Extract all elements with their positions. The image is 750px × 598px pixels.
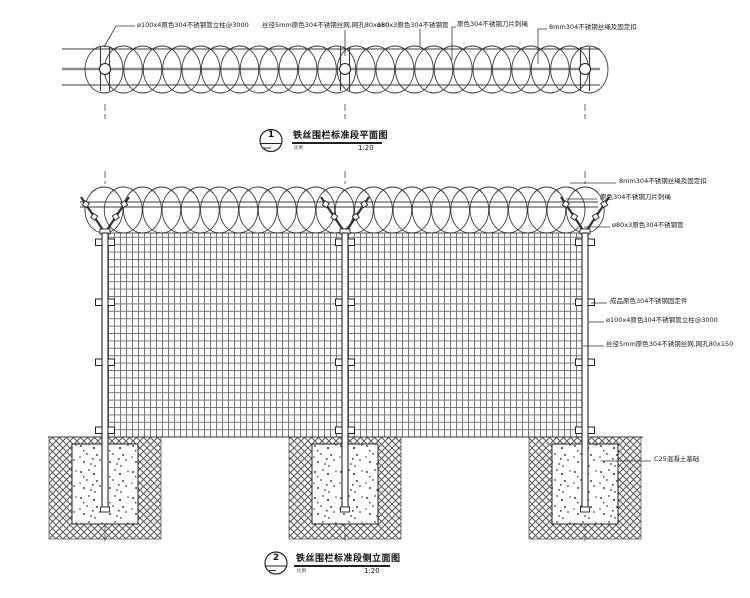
mesh-fixing-clip bbox=[576, 239, 583, 246]
mesh-fixing-clip bbox=[108, 359, 115, 366]
post-base bbox=[341, 507, 350, 512]
mesh-fixing-clip bbox=[336, 239, 343, 246]
plan-label-post: ø100x4原色304不锈钢管立柱@3000 bbox=[137, 22, 249, 29]
mesh-fixing-clip bbox=[576, 359, 583, 366]
plan-post-section bbox=[580, 64, 591, 75]
plan-scale-label: 比例 bbox=[294, 145, 303, 151]
fence-post bbox=[102, 233, 108, 509]
mesh-fixing-clip bbox=[336, 427, 343, 434]
mesh-fixing-clip bbox=[588, 359, 595, 366]
mesh-fixing-clip bbox=[588, 427, 595, 434]
elev-label-razor: 原色304不锈钢刀片刺绳 bbox=[600, 194, 671, 201]
plan-post-section bbox=[100, 64, 111, 75]
mesh-fixing-clip bbox=[108, 239, 115, 246]
elevation-view bbox=[48, 171, 643, 542]
plan-post-section bbox=[340, 64, 351, 75]
mesh-fixing-clip bbox=[576, 299, 583, 306]
plan-title: 铁丝围栏标准段平面图 bbox=[293, 128, 388, 141]
post-base bbox=[101, 507, 110, 512]
elev-label-pipe: ø80x3原色304不锈钢管 bbox=[612, 222, 684, 229]
mesh-fixing-clip bbox=[96, 239, 103, 246]
mesh-fixing-clip bbox=[108, 299, 115, 306]
fence-post bbox=[582, 233, 588, 509]
elevation-title: 铁丝围栏标准段侧立面图 bbox=[296, 551, 401, 564]
detail-number-1: 1 bbox=[260, 130, 282, 140]
elev-label-mesh: 丝径5mm原色304不锈钢丝网,网孔80x150 bbox=[606, 341, 733, 348]
mesh-fixing-clip bbox=[336, 359, 343, 366]
plan-leader-razor bbox=[452, 27, 456, 60]
elev-label-footing: C25混凝土基础 bbox=[654, 456, 699, 463]
plan-label-pipe: ø80x3原色304不锈钢管 bbox=[377, 22, 449, 29]
plan-view bbox=[62, 46, 608, 119]
mesh-fixing-clip bbox=[348, 359, 355, 366]
plan-label-razor: 原色304不锈钢刀片刺绳 bbox=[457, 21, 528, 28]
mesh-fixing-clip bbox=[348, 299, 355, 306]
plan-scale-value: 1:20 bbox=[358, 144, 374, 152]
mesh-fixing-clip bbox=[108, 427, 115, 434]
mesh-fixing-clip bbox=[588, 239, 595, 246]
plan-label-mesh: 丝径5mm原色304不锈钢丝网,网孔80x150 bbox=[262, 22, 389, 29]
mesh-fixing-clip bbox=[96, 427, 103, 434]
elevation-scale-value: 1:20 bbox=[364, 567, 380, 575]
elevation-scale-label: 比例 bbox=[297, 568, 306, 574]
plan-label-rope: 8mm304不锈钢丝绳及固定扣 bbox=[549, 24, 637, 31]
mesh-fixing-clip bbox=[336, 299, 343, 306]
cad-drawing-sheet: ø100x4原色304不锈钢管立柱@3000 丝径5mm原色304不锈钢丝网,网… bbox=[0, 0, 750, 598]
post-base bbox=[581, 507, 590, 512]
detail-number-2: 2 bbox=[265, 553, 287, 563]
mesh-fixing-clip bbox=[348, 427, 355, 434]
mesh-fixing-clip bbox=[588, 299, 595, 306]
mesh-fixing-clip bbox=[576, 427, 583, 434]
plan-leader-post bbox=[104, 26, 135, 47]
elev-label-post: ø100x4原色304不锈钢管立柱@3000 bbox=[606, 317, 718, 324]
elev-label-rope: 8mm304不锈钢丝绳及固定扣 bbox=[619, 178, 707, 185]
mesh-fixing-clip bbox=[96, 299, 103, 306]
mesh-fixing-clip bbox=[348, 239, 355, 246]
elev-label-fixing: 成品原色304不锈钢固定件 bbox=[610, 298, 687, 305]
mesh-fixing-clip bbox=[96, 359, 103, 366]
fence-post bbox=[342, 233, 348, 509]
